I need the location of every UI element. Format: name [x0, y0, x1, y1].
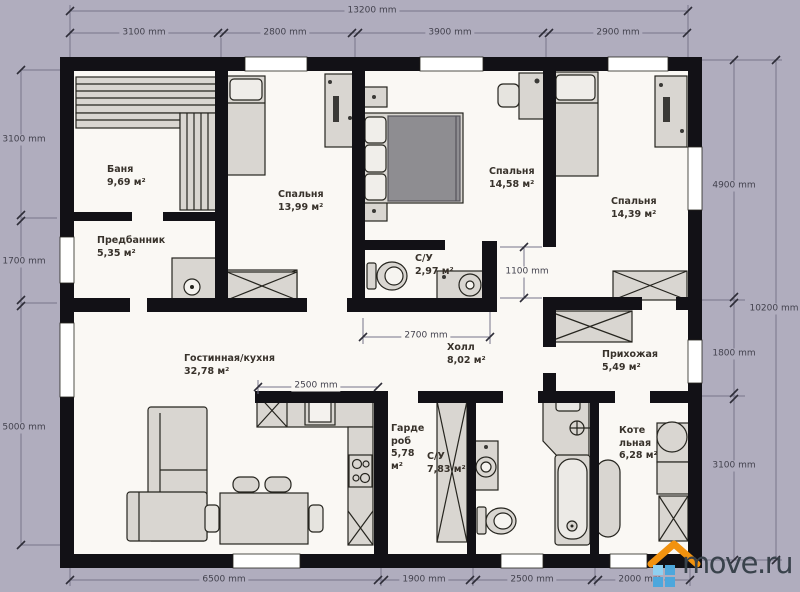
dim-inner-hall: 2700 mm [401, 331, 450, 342]
wall-outer-left [60, 71, 74, 554]
room-label-garderob: Гарде роб 5,78 м² [391, 423, 429, 473]
window [501, 554, 543, 568]
room-name: Спальня [278, 189, 324, 202]
floor-plan-screenshot: Баня 9,69 м² Предбанник 5,35 м² Спальня … [0, 0, 800, 592]
dim-left-1: 3100 mm [0, 135, 49, 146]
dim-inner-corridor: 1100 mm [502, 267, 551, 278]
window [420, 57, 483, 71]
corner-shower-icon [543, 396, 590, 458]
room-label-predbannik: Предбанник 5,35 м² [97, 235, 165, 260]
room-area: 13,99 м² [278, 202, 324, 215]
wall-interior [590, 391, 599, 554]
entry-door-opening [688, 340, 702, 383]
room-area: 32,78 м² [184, 366, 275, 379]
floor-plan-drawing [0, 0, 800, 592]
dim-top-1: 3100 mm [119, 28, 168, 39]
room-area: 6,28 м² [619, 450, 661, 463]
water-heater-icon [596, 460, 620, 537]
room-label-bathroom: С/У 7,83 м² [427, 451, 466, 476]
dim-inner-kitchen: 2500 mm [291, 381, 340, 392]
room-label-wc-small: С/У 2,97 м² [415, 253, 454, 278]
wall-interior [543, 71, 556, 247]
logo-square [653, 577, 663, 587]
closet-icon [227, 272, 297, 300]
room-label-bedroom-2: Спальня 14,58 м² [489, 166, 535, 191]
room-area: 5,49 м² [602, 362, 658, 375]
toilet-icon [477, 507, 516, 534]
shower-tray-icon [172, 258, 218, 300]
window [245, 57, 307, 71]
wall-interior [650, 391, 702, 403]
dim-left-3: 5000 mm [0, 423, 49, 434]
wall-interior [215, 71, 228, 306]
room-name: Спальня [611, 196, 657, 209]
room-name: С/У [415, 253, 454, 266]
wall-interior [418, 391, 467, 403]
room-label-banya: Баня 9,69 м² [107, 164, 146, 189]
wall-interior [543, 297, 556, 347]
room-area: 14,39 м² [611, 209, 657, 222]
room-label-bedroom-1: Спальня 13,99 м² [278, 189, 324, 214]
dim-top-4: 2900 mm [593, 28, 642, 39]
wall-interior [147, 298, 307, 312]
boiler-icon [657, 422, 689, 541]
window [233, 554, 300, 568]
window [60, 237, 74, 283]
dim-bottom-2: 1900 mm [399, 575, 448, 586]
dim-right-1: 4900 mm [709, 181, 758, 192]
single-bed-icon [227, 76, 265, 175]
room-name: С/У [427, 451, 466, 464]
room-label-boiler-room: Коте льная 6,28 м² [619, 425, 661, 463]
wall-interior [365, 298, 497, 312]
window [610, 554, 647, 568]
room-area: 7,83 м² [427, 464, 466, 477]
room-label-living-kitchen: Гостинная/кухня 32,78 м² [184, 353, 275, 378]
room-name: Предбанник [97, 235, 165, 248]
wall-interior [676, 297, 702, 310]
window [608, 57, 668, 71]
wall-interior [482, 241, 497, 302]
toilet-icon [367, 262, 407, 290]
room-label-hall: Холл 8,02 м² [447, 342, 486, 367]
wall-interior [352, 71, 365, 312]
dim-top-2: 2800 mm [260, 28, 309, 39]
logo-square [665, 565, 675, 575]
room-label-bedroom-3: Спальня 14,39 м² [611, 196, 657, 221]
wall-interior [74, 212, 132, 221]
room-name: Коте льная [619, 425, 661, 450]
room-name: Баня [107, 164, 146, 177]
room-area: 2,97 м² [415, 266, 454, 279]
wall-interior [538, 391, 615, 403]
wall-interior [255, 391, 374, 403]
room-area: 8,02 м² [447, 355, 486, 368]
room-name: Холл [447, 342, 486, 355]
move-ru-logo-text: move.ru [682, 546, 792, 580]
window [688, 147, 702, 210]
move-ru-logo[interactable]: move.ru [645, 538, 800, 592]
room-name: Прихожая [602, 349, 658, 362]
wall-interior [163, 212, 228, 221]
room-name: Гостинная/кухня [184, 353, 275, 366]
dresser-icon [325, 74, 355, 147]
wall-interior [374, 391, 388, 554]
wall-interior [467, 391, 476, 554]
dim-right-2: 1800 mm [709, 349, 758, 360]
wardrobe-icon [548, 311, 632, 342]
room-area: 9,69 м² [107, 177, 146, 190]
dim-bottom-1: 6500 mm [199, 575, 248, 586]
double-bed-icon [362, 113, 463, 203]
single-bed-icon [553, 72, 598, 176]
dim-right-3: 3100 mm [709, 461, 758, 472]
logo-square [665, 577, 675, 587]
wall-interior [74, 298, 130, 312]
vanity-sink-icon [475, 441, 498, 490]
room-area: 14,58 м² [489, 179, 535, 192]
closet-icon [613, 271, 687, 300]
room-area: 5,35 м² [97, 248, 165, 261]
wall-interior [476, 391, 503, 403]
room-name: Спальня [489, 166, 535, 179]
room-area: 5,78 м² [391, 448, 429, 473]
room-name: Гарде роб [391, 423, 429, 448]
wall-outer-right [688, 71, 702, 554]
room-label-prihozhaya: Прихожая 5,49 м² [602, 349, 658, 374]
logo-square [653, 565, 663, 575]
wall-interior [365, 240, 445, 250]
nightstand-icon [362, 201, 387, 221]
dim-top-total: 13200 mm [344, 6, 399, 17]
wall-outer-top [60, 57, 702, 71]
dim-left-2: 1700 mm [0, 257, 49, 268]
dresser-icon [655, 76, 687, 147]
dim-bottom-3: 2500 mm [507, 575, 556, 586]
window [60, 323, 74, 397]
dim-top-3: 3900 mm [425, 28, 474, 39]
nightstand-icon [362, 87, 387, 107]
bathtub-icon [555, 455, 590, 545]
wall-outer-bottom [60, 554, 702, 568]
wall-interior [556, 297, 642, 310]
dim-right-total: 10200 mm [746, 304, 800, 315]
